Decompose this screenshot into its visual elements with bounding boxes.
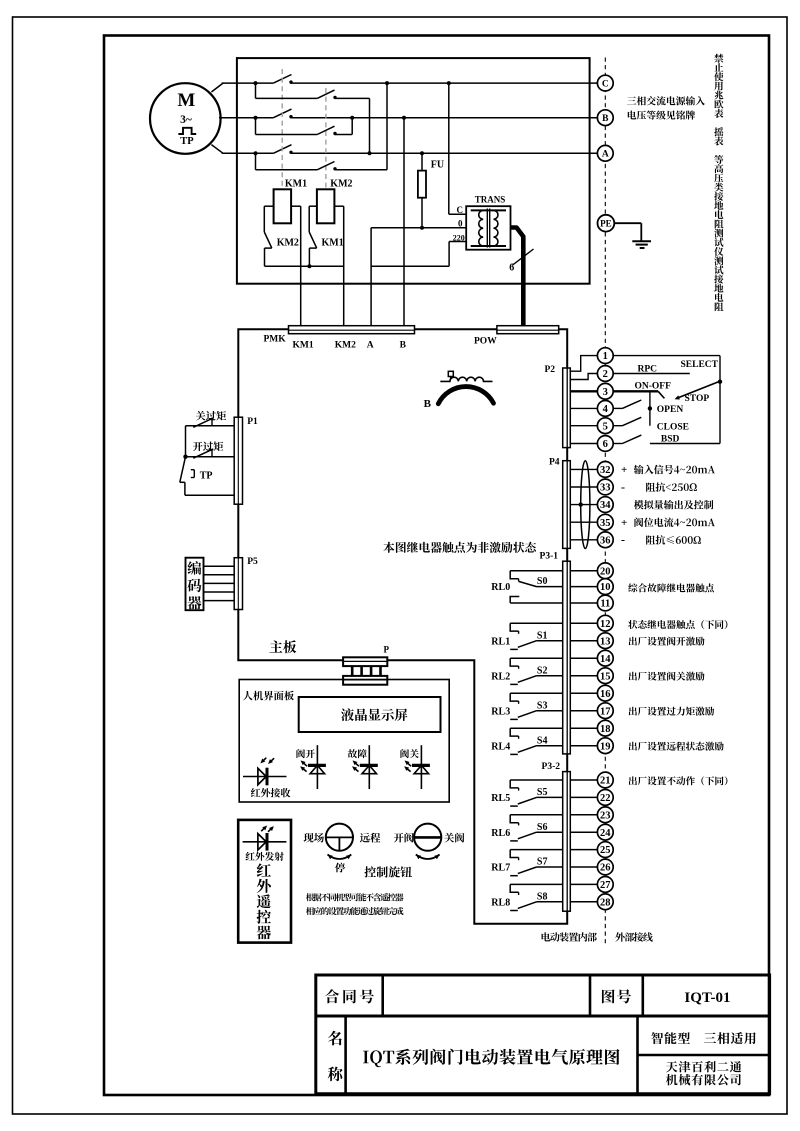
svg-text:17: 17 [600, 706, 611, 717]
svg-text:ON-OFF: ON-OFF [635, 381, 672, 391]
svg-text:A: A [602, 150, 609, 160]
svg-text:19: 19 [600, 741, 611, 752]
svg-text:KM2: KM2 [330, 179, 352, 190]
svg-text:27: 27 [600, 880, 611, 891]
svg-text:3~: 3~ [180, 114, 192, 126]
svg-text:CLOSE: CLOSE [657, 422, 689, 432]
svg-text:24: 24 [600, 828, 611, 839]
svg-text:KM1: KM1 [322, 237, 344, 248]
svg-text:14: 14 [600, 654, 611, 665]
svg-text:35: 35 [600, 518, 611, 529]
svg-text:IQT-01: IQT-01 [684, 990, 730, 1006]
svg-text:C: C [602, 80, 609, 90]
svg-text:RL1: RL1 [491, 636, 510, 647]
svg-text:TP: TP [180, 136, 194, 147]
svg-text:POW: POW [474, 337, 497, 347]
svg-text:23: 23 [600, 810, 611, 821]
svg-text:B: B [424, 398, 432, 410]
svg-text:22: 22 [600, 793, 611, 804]
svg-text:220: 220 [453, 233, 465, 242]
svg-text:S2: S2 [537, 665, 548, 676]
svg-text:18: 18 [600, 724, 611, 735]
svg-text:RL4: RL4 [491, 741, 510, 752]
svg-text:RPC: RPC [638, 364, 658, 374]
svg-text:10: 10 [600, 582, 611, 593]
svg-text:KM2: KM2 [277, 237, 299, 248]
svg-text:RL0: RL0 [491, 582, 510, 593]
svg-text:OPEN: OPEN [657, 405, 684, 415]
svg-text:S4: S4 [537, 735, 548, 746]
svg-text:P1: P1 [247, 417, 258, 427]
svg-text:S1: S1 [537, 630, 548, 641]
svg-text:P2: P2 [544, 365, 555, 375]
svg-text:P5: P5 [247, 557, 258, 567]
svg-text:5: 5 [603, 421, 608, 432]
svg-text:C: C [457, 205, 464, 215]
svg-text:6: 6 [509, 262, 514, 273]
svg-text:SELECT: SELECT [681, 360, 719, 370]
svg-text:B: B [602, 114, 609, 124]
svg-text:13: 13 [600, 636, 611, 647]
svg-text:20: 20 [600, 566, 611, 577]
svg-text:25: 25 [600, 845, 611, 856]
svg-text:KM2: KM2 [335, 341, 356, 351]
svg-text:11: 11 [600, 599, 610, 610]
svg-text:RL8: RL8 [491, 897, 510, 908]
svg-text:RL7: RL7 [491, 863, 510, 874]
svg-text:RL5: RL5 [491, 793, 510, 804]
svg-text:33: 33 [600, 483, 611, 494]
svg-text:3: 3 [603, 387, 608, 398]
svg-text:4: 4 [603, 404, 609, 415]
svg-text:A: A [367, 341, 374, 351]
svg-text:PE: PE [600, 219, 612, 229]
svg-text:KM1: KM1 [293, 341, 314, 351]
svg-text:+: + [621, 517, 627, 529]
svg-text:S8: S8 [537, 891, 548, 902]
svg-text:RL6: RL6 [491, 828, 510, 839]
svg-text:P3-1: P3-1 [540, 552, 559, 562]
svg-text:BSD: BSD [661, 434, 680, 444]
svg-text:-: - [621, 480, 625, 494]
svg-text:S5: S5 [537, 787, 548, 798]
svg-text:26: 26 [600, 863, 611, 874]
svg-text:PMK: PMK [264, 335, 287, 345]
svg-text:P4: P4 [549, 458, 560, 468]
svg-text:28: 28 [600, 897, 611, 908]
svg-text:+: + [621, 464, 627, 476]
svg-text:1: 1 [603, 351, 608, 362]
svg-text:TP: TP [200, 471, 213, 482]
svg-text:6: 6 [603, 439, 608, 450]
svg-text:15: 15 [600, 671, 611, 682]
svg-text:S0: S0 [537, 576, 548, 587]
svg-text:B: B [400, 341, 407, 351]
svg-text:0: 0 [458, 218, 463, 228]
svg-text:-: - [621, 533, 625, 547]
svg-text:16: 16 [600, 689, 611, 700]
svg-text:RL2: RL2 [491, 671, 510, 682]
svg-text:12: 12 [600, 619, 611, 630]
svg-text:FU: FU [431, 160, 444, 171]
svg-text:RL3: RL3 [491, 706, 510, 717]
svg-text:21: 21 [600, 776, 611, 787]
svg-text:P3-2: P3-2 [542, 762, 561, 772]
svg-text:P: P [384, 644, 390, 654]
svg-text:32: 32 [600, 465, 611, 476]
svg-text:KM1: KM1 [285, 179, 307, 190]
svg-text:S3: S3 [537, 700, 548, 711]
svg-text:M: M [177, 90, 195, 111]
svg-text:S7: S7 [537, 857, 548, 868]
svg-text:36: 36 [600, 535, 611, 546]
svg-text:TRANS: TRANS [475, 194, 506, 204]
svg-text:STOP: STOP [685, 394, 710, 404]
svg-text:S6: S6 [537, 822, 548, 833]
svg-text:2: 2 [603, 369, 608, 380]
svg-text:34: 34 [600, 500, 611, 511]
